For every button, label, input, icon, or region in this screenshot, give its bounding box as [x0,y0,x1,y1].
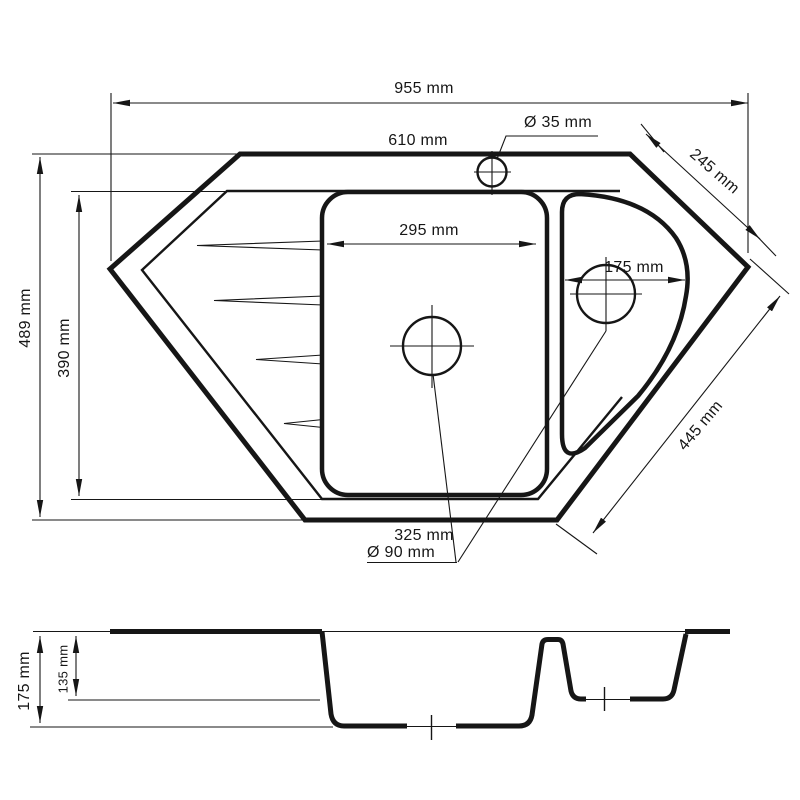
sink-technical-drawing: 955 mm 610 mm Ø 35 mm 245 mm 295 mm 175 … [0,0,800,800]
dim-label-610: 610 mm [388,133,448,149]
top-view [32,93,789,563]
drainer-groove [284,420,323,428]
dim-label-175-depth: 175 mm [17,651,33,711]
dim-label-390: 390 mm [57,318,73,378]
dim-445-tick-top [750,259,789,294]
dim-label-135-depth: 135 mm [57,645,70,694]
section-main-bowl-right-divider [456,640,586,727]
section-small-bowl-right [630,634,686,699]
dim-label-175-bowl: 175 mm [604,260,664,276]
drainer-groove [256,355,323,364]
dim-label-489: 489 mm [18,288,34,348]
section-main-bowl-left [322,632,407,727]
outer-outline [110,154,748,520]
dim-label-325: 325 mm [394,528,454,544]
dim-445-tick-bottom [556,524,597,554]
main-drain-crosshair [390,305,474,388]
inner-rim-outline [142,191,622,499]
drainer-groove [214,296,323,305]
dim-label-drain: Ø 90 mm [367,545,435,561]
small-bowl-outline [562,194,688,454]
dim-245-tick-bottom [751,230,776,256]
drainer-groove [197,241,323,250]
section-view [30,632,730,741]
sink-drawing-svg [0,0,800,800]
dim-label-faucet-hole: Ø 35 mm [524,115,592,131]
dim-label-295: 295 mm [399,223,459,239]
dim-label-955: 955 mm [394,81,454,97]
dim-245-tick-top [641,124,664,152]
